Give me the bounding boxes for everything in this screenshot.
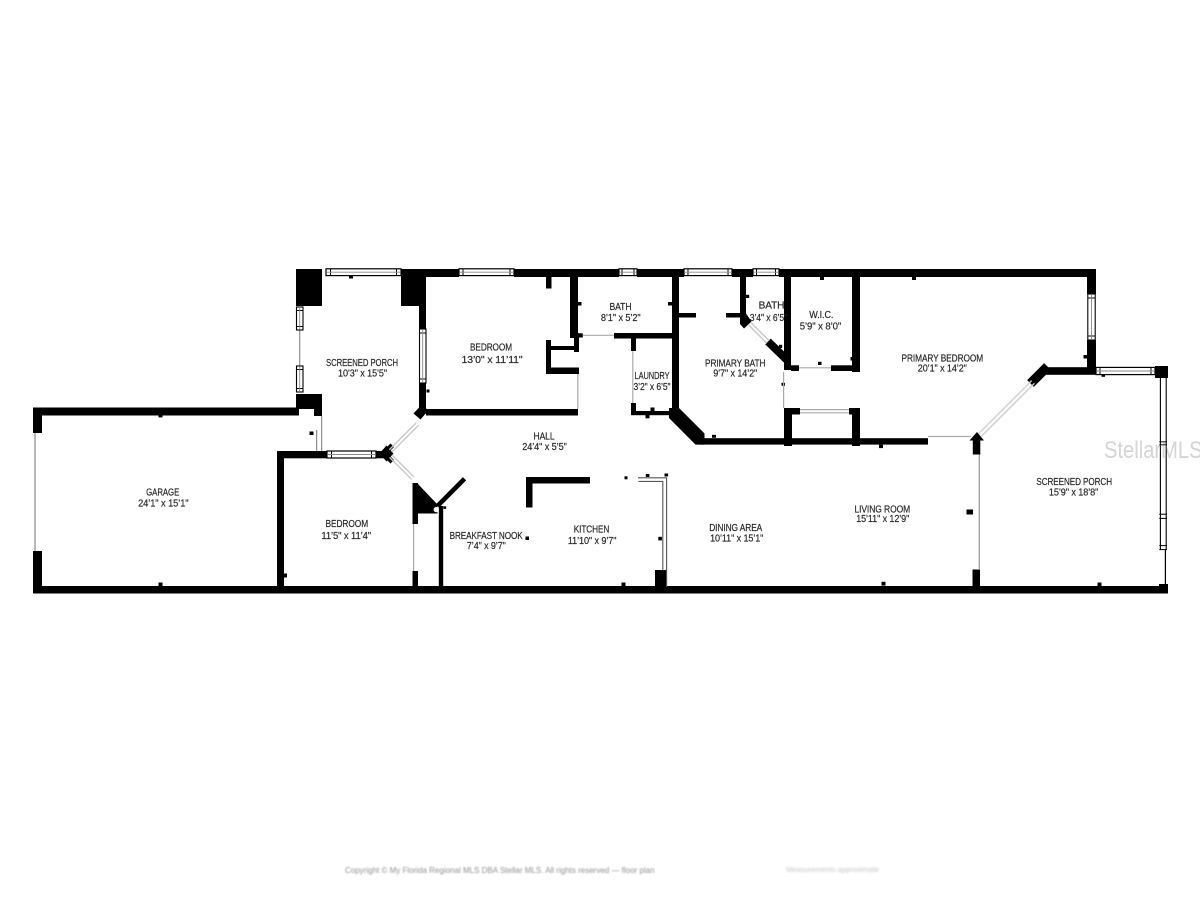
svg-text:BATH: BATH [759,300,785,311]
svg-text:11’5" x 11’4": 11’5" x 11’4" [321,531,371,542]
svg-text:7’4" x 9’7": 7’4" x 9’7" [467,541,506,552]
svg-text:BEDROOM: BEDROOM [326,519,369,530]
svg-text:5’9" x 8’0": 5’9" x 8’0" [800,322,842,333]
svg-text:LAUNDRY: LAUNDRY [635,371,670,382]
svg-text:24’1" x 15’1": 24’1" x 15’1" [138,498,189,509]
svg-text:W.I.C.: W.I.C. [809,310,833,321]
svg-text:24’4" x 5’5": 24’4" x 5’5" [522,442,567,453]
svg-text:8’1" x 5’2": 8’1" x 5’2" [601,313,641,324]
svg-text:KITCHEN: KITCHEN [574,525,610,536]
svg-text:20’1" x 14’2": 20’1" x 14’2" [918,363,967,374]
svg-text:BATH: BATH [610,302,632,313]
svg-text:15’11" x 12’9": 15’11" x 12’9" [856,514,909,525]
svg-text:GARAGE: GARAGE [146,487,179,498]
svg-text:10’3" x 15’5": 10’3" x 15’5" [338,368,387,379]
svg-text:BEDROOM: BEDROOM [470,343,512,354]
svg-text:10’11" x 15’1": 10’11" x 15’1" [710,534,764,545]
svg-text:DINING AREA: DINING AREA [709,523,762,534]
svg-text:3’4" x 6’5": 3’4" x 6’5" [750,313,788,324]
svg-text:3’2" x 6’5": 3’2" x 6’5" [634,382,671,393]
svg-text:15’9" x 18’8": 15’9" x 18’8" [1049,488,1099,499]
svg-text:9’7" x 14’2": 9’7" x 14’2" [713,369,757,380]
svg-text:13’0" x 11’11": 13’0" x 11’11" [462,355,523,366]
svg-text:HALL: HALL [534,432,555,443]
svg-text:11’10" x 9’7": 11’10" x 9’7" [568,536,617,547]
